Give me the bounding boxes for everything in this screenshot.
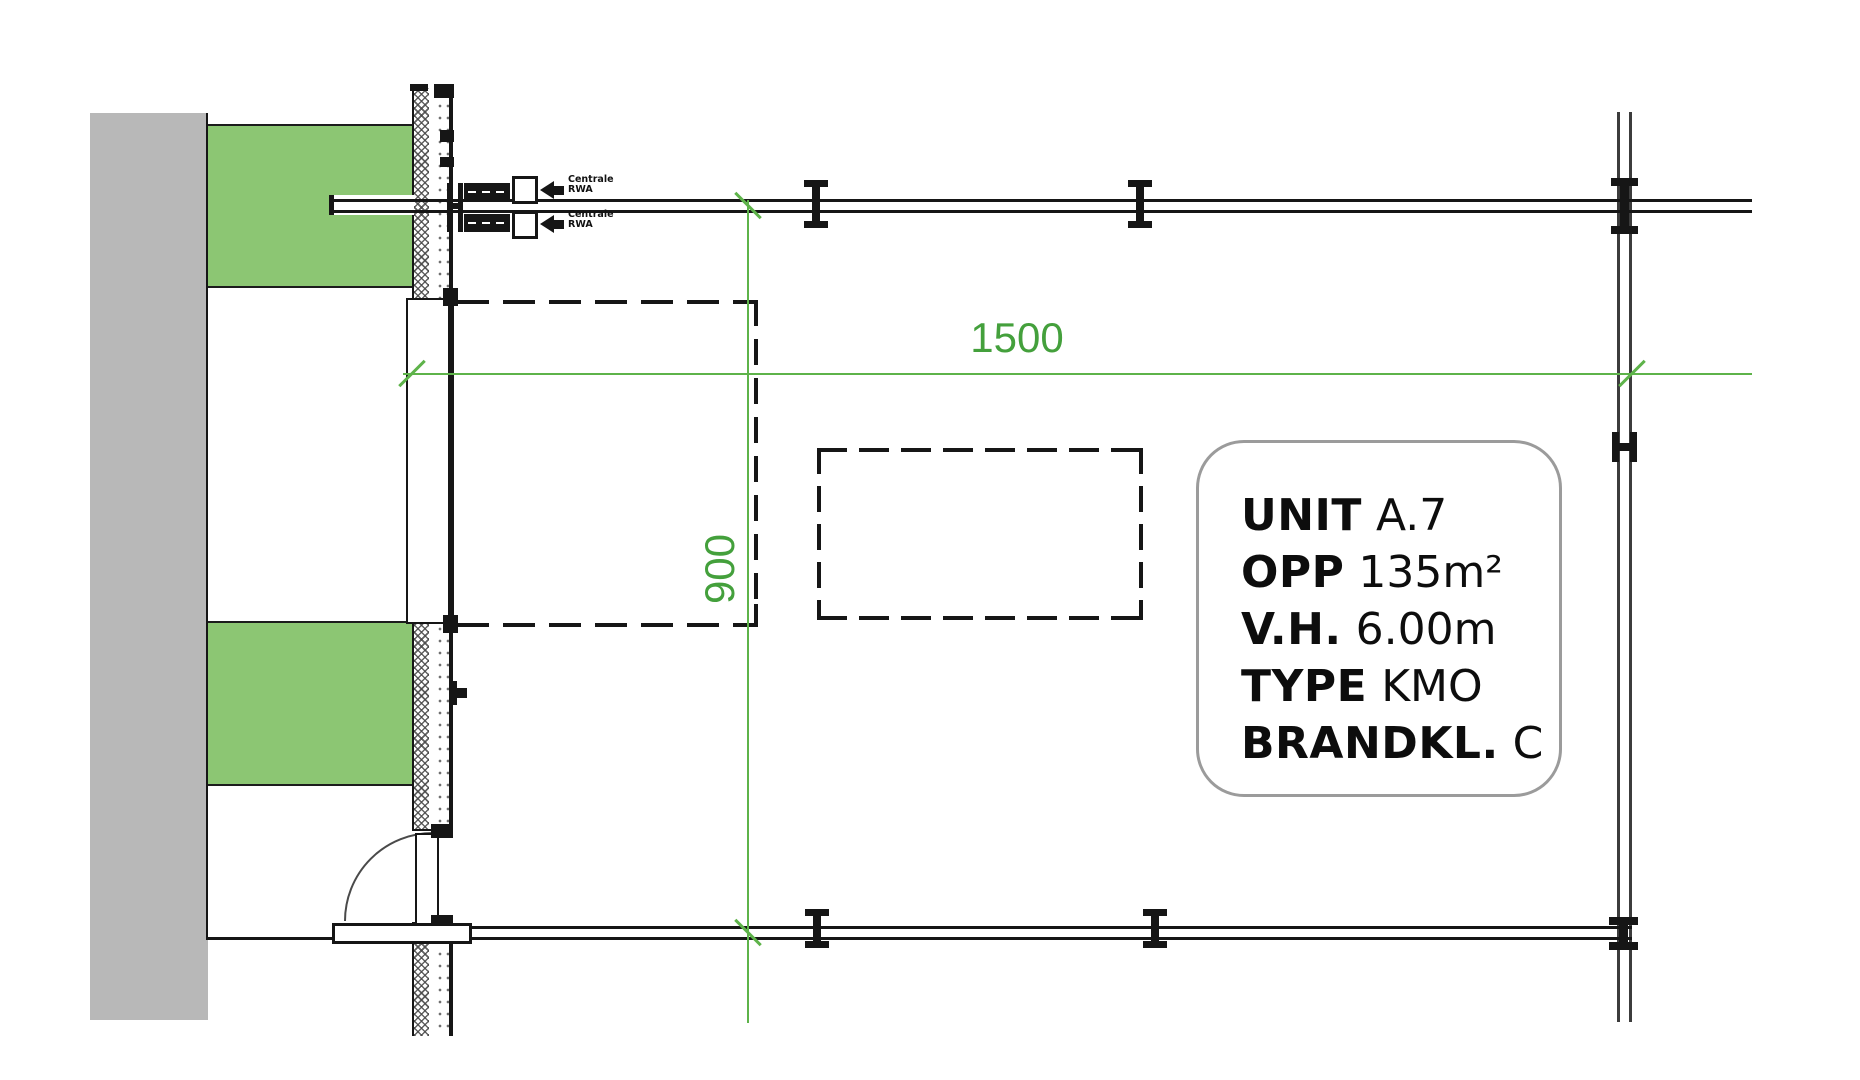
exterior-wall-gray — [90, 113, 208, 1020]
column-tick-flange — [804, 221, 828, 228]
rwa-panel-detail — [468, 222, 506, 224]
column-tick-flange — [1143, 941, 1167, 948]
info-label: V.H. — [1241, 604, 1342, 655]
info-value: 135m² — [1358, 547, 1502, 598]
info-value: KMO — [1381, 661, 1482, 712]
unit-info-row: TYPEKMO — [1241, 658, 1559, 715]
info-label: TYPE — [1241, 661, 1367, 712]
object-outline-top-dashed — [817, 448, 1143, 452]
dimension-label-vertical: 900 — [696, 499, 736, 639]
beam-line-bottom-1 — [453, 926, 1632, 929]
column-tick-flange — [1143, 909, 1167, 916]
object-outline-left-dashed — [817, 448, 821, 620]
clearance-corner-stub — [754, 300, 758, 320]
unit-info-row: V.H.6.00m — [1241, 601, 1559, 658]
grid-column-connector-bottom — [1609, 917, 1638, 925]
rwa-bracket — [447, 203, 463, 209]
clearance-corner-stub — [754, 604, 758, 627]
rwa-label-line2: RWA — [568, 185, 614, 195]
column-tick-flange — [804, 180, 828, 187]
rwa-label-line2: RWA — [568, 220, 614, 230]
arrow-left-icon — [540, 215, 554, 233]
info-value: 6.00m — [1356, 604, 1497, 655]
unit-info-row: BRANDKL.C — [1241, 715, 1559, 772]
rwa-panel — [464, 214, 510, 232]
grid-column-connector-bottom — [1609, 942, 1638, 950]
info-value: C — [1513, 718, 1544, 769]
rwa-panel-detail — [468, 191, 506, 193]
dimension-line-horizontal — [403, 373, 1752, 375]
clearance-zone-top-dashed — [457, 300, 757, 304]
info-value: A.7 — [1376, 490, 1447, 541]
sectional-gate — [406, 298, 454, 624]
rwa-box — [512, 211, 538, 239]
grid-line-vertical-2 — [1629, 112, 1632, 1022]
rwa-label: Centrale RWA — [568, 210, 614, 230]
facade-wall-middle — [412, 623, 453, 831]
arrow-tail — [554, 186, 564, 195]
floor-plan-canvas: 1500 900 Centrale RWA Centrale RWA UNITA… — [0, 0, 1860, 1080]
unit-info-row: UNITA.7 — [1241, 487, 1559, 544]
object-outline-bottom-dashed — [817, 616, 1143, 620]
info-label: UNIT — [1241, 490, 1362, 541]
dimension-label-horizontal: 1500 — [952, 314, 1082, 362]
grid-column-connector-top — [1611, 178, 1638, 186]
wall-top-cap — [434, 84, 454, 98]
column-tick-flange — [805, 941, 829, 948]
info-label: BRANDKL. — [1241, 718, 1499, 769]
rwa-panel — [464, 183, 510, 201]
rwa-box — [512, 176, 538, 204]
wall-outer-line — [449, 623, 453, 831]
cladding-strip — [436, 623, 449, 831]
insulation-hatch — [414, 88, 429, 300]
green-zone-bottom — [208, 621, 412, 786]
wall-fastener — [440, 157, 454, 167]
gate-connector-top — [443, 288, 458, 306]
gate-connector-bottom — [443, 615, 458, 633]
door-hinge-top — [431, 824, 453, 838]
arrow-tail — [554, 220, 564, 229]
grid-column-connector-mid — [1612, 443, 1637, 451]
wall-fastener — [440, 130, 454, 142]
unit-info-row: OPP135m² — [1241, 544, 1559, 601]
arrow-left-icon — [540, 181, 554, 199]
column-tick-flange — [805, 909, 829, 916]
column-tick-flange — [1128, 221, 1152, 228]
column-tick-flange — [1128, 180, 1152, 187]
dimension-line-vertical — [747, 200, 749, 1023]
wall-top-cap-small — [410, 84, 428, 91]
beam-line-top-2 — [332, 210, 1752, 213]
beam-line-top-1 — [332, 199, 1752, 202]
door-leaf — [415, 833, 439, 925]
insulation-hatch — [414, 623, 429, 831]
grid-column-connector-bottom — [1619, 925, 1628, 942]
grid-line-vertical-1 — [1617, 112, 1620, 1022]
object-outline-right-dashed — [1139, 448, 1143, 620]
clearance-zone-right-dashed — [754, 300, 758, 627]
unit-info-box: UNITA.7 OPP135m² V.H.6.00m TYPEKMO BRAND… — [1196, 440, 1562, 797]
info-label: OPP — [1241, 547, 1344, 598]
wall-bracket-stub — [457, 688, 467, 698]
grid-column-connector-top — [1611, 226, 1638, 234]
door-threshold-plate — [332, 923, 472, 944]
rwa-label: Centrale RWA — [568, 175, 614, 195]
